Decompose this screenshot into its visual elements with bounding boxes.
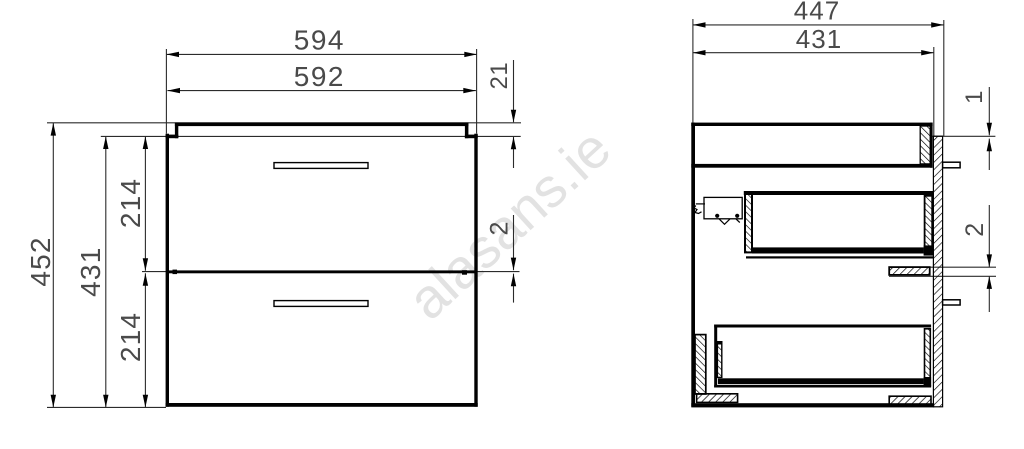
svg-text:452: 452 [25, 236, 56, 286]
svg-text:592: 592 [294, 61, 345, 92]
svg-text:431: 431 [796, 24, 842, 54]
svg-text:431: 431 [75, 247, 106, 297]
svg-text:2: 2 [485, 221, 513, 235]
svg-text:214: 214 [115, 312, 146, 362]
svg-text:1: 1 [961, 90, 988, 104]
svg-text:21: 21 [486, 62, 513, 90]
svg-text:214: 214 [115, 178, 146, 228]
svg-text:2: 2 [961, 222, 989, 236]
svg-text:594: 594 [294, 25, 345, 56]
svg-text:447: 447 [794, 0, 840, 26]
